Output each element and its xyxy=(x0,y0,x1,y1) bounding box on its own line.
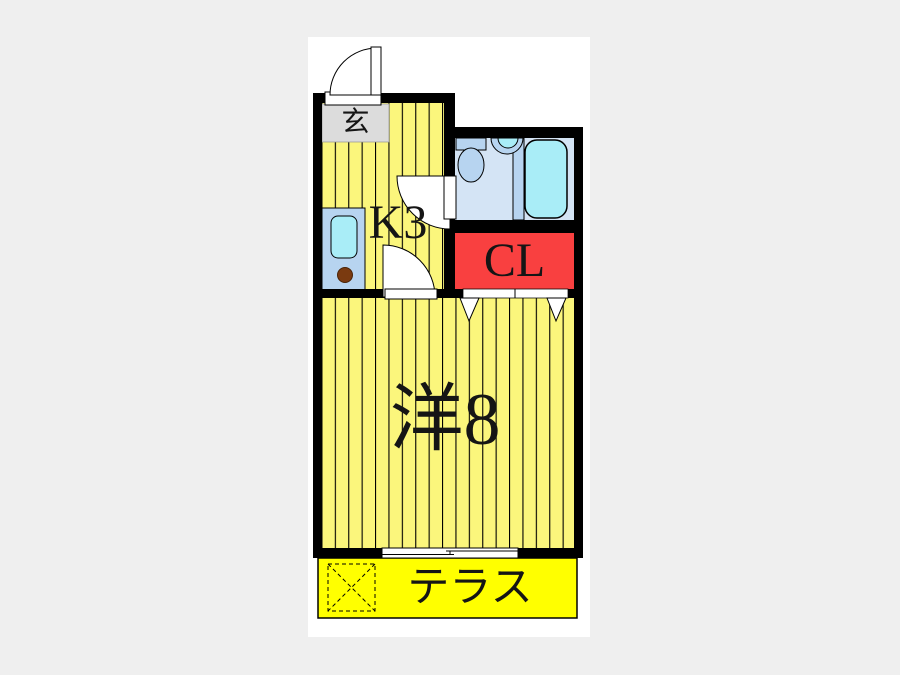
floorplan-paper: 玄 K3 CL 洋8 テラス xyxy=(308,37,590,637)
wall-segment xyxy=(574,127,583,558)
bathtub-icon xyxy=(525,140,567,218)
wall-segment xyxy=(444,127,583,138)
floorplan-drawing xyxy=(308,37,590,637)
entry-door-swing-arc xyxy=(330,48,377,95)
wall-segment xyxy=(313,93,322,558)
kitchen-sink-icon xyxy=(331,216,357,258)
washroom-door-leaf xyxy=(444,176,456,219)
room-door-leaf xyxy=(385,289,437,299)
entry-door-leaf xyxy=(371,47,381,95)
entrance-mat xyxy=(322,104,389,142)
toilet-icon xyxy=(458,148,484,182)
wall-segment xyxy=(444,220,583,233)
main-room-floor xyxy=(322,298,574,548)
screenshot-background: 玄 K3 CL 洋8 テラス xyxy=(0,0,900,675)
terrace-area xyxy=(318,558,577,618)
window-symbol xyxy=(382,548,518,558)
stove-burner-icon xyxy=(338,268,353,283)
closet-area xyxy=(455,233,574,289)
